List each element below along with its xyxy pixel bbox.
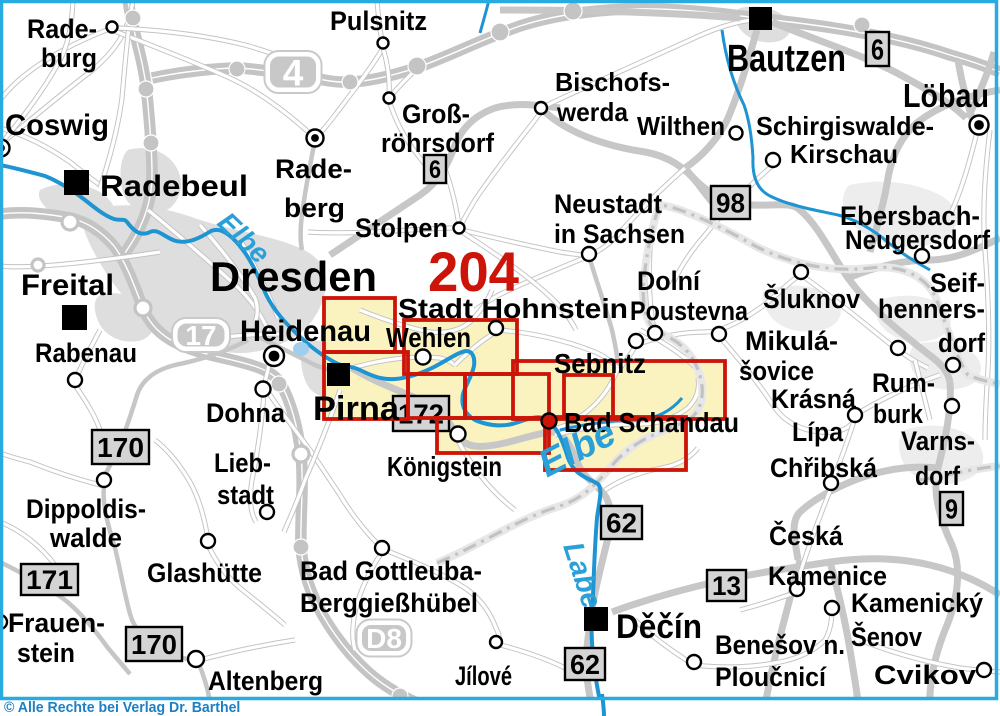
svg-text:Schirgiswalde-: Schirgiswalde-: [756, 111, 934, 141]
svg-text:Krásná: Krásná: [771, 384, 857, 414]
svg-text:Lípa: Lípa: [792, 417, 844, 447]
svg-text:Bad Gottleuba-: Bad Gottleuba-: [300, 556, 482, 586]
svg-text:Königstein: Königstein: [387, 451, 502, 482]
svg-text:9: 9: [945, 494, 958, 525]
svg-text:Kamenice: Kamenice: [768, 561, 887, 591]
svg-text:Stolpen: Stolpen: [355, 213, 448, 243]
svg-text:Neugersdorf: Neugersdorf: [845, 225, 991, 255]
svg-text:Glashütte: Glashütte: [147, 558, 262, 588]
svg-text:Mikulá-: Mikulá-: [745, 326, 838, 356]
svg-text:burg: burg: [41, 43, 97, 73]
svg-text:Wehlen: Wehlen: [386, 322, 471, 353]
svg-text:17: 17: [185, 320, 216, 351]
svg-text:Lieb-: Lieb-: [214, 448, 271, 478]
svg-text:Jílové: Jílové: [455, 661, 512, 691]
svg-text:Sebnitz: Sebnitz: [554, 348, 646, 379]
svg-text:Coswig: Coswig: [5, 109, 109, 142]
svg-text:Dresden: Dresden: [210, 253, 377, 300]
svg-text:Pirna: Pirna: [313, 390, 400, 428]
svg-text:Chřibská: Chřibská: [770, 453, 878, 483]
svg-text:Bischofs-: Bischofs-: [555, 67, 670, 97]
svg-text:6: 6: [429, 156, 441, 184]
svg-text:Pulsnitz: Pulsnitz: [330, 6, 427, 36]
svg-text:Poustevna: Poustevna: [630, 296, 749, 326]
svg-text:Berggießhübel: Berggießhübel: [300, 588, 478, 618]
svg-text:Šenov: Šenov: [851, 621, 922, 652]
svg-text:Cvikov: Cvikov: [874, 660, 976, 690]
svg-text:dorf: dorf: [938, 328, 986, 358]
svg-text:Frauen-: Frauen-: [8, 608, 105, 638]
svg-text:röhrsdorf: röhrsdorf: [381, 128, 495, 158]
svg-text:Kamenický: Kamenický: [851, 588, 983, 618]
svg-text:dorf: dorf: [915, 461, 961, 491]
svg-text:Kirschau: Kirschau: [790, 139, 898, 169]
svg-text:berg: berg: [284, 193, 345, 223]
svg-text:Benešov n.: Benešov n.: [715, 630, 845, 660]
svg-text:Dolní: Dolní: [637, 266, 701, 296]
svg-text:Dohna: Dohna: [206, 398, 286, 428]
svg-text:Wilthen: Wilthen: [637, 111, 725, 141]
svg-text:Radebeul: Radebeul: [100, 170, 248, 203]
svg-text:Rum-: Rum-: [872, 368, 935, 398]
svg-text:Neustadt: Neustadt: [554, 189, 662, 219]
svg-text:170: 170: [97, 432, 144, 463]
svg-text:henners-: henners-: [878, 294, 985, 324]
svg-text:Freital: Freital: [21, 269, 114, 302]
svg-text:Rabenau: Rabenau: [35, 338, 137, 368]
svg-text:Varns-: Varns-: [901, 426, 975, 456]
svg-text:Löbau: Löbau: [903, 77, 989, 114]
svg-text:šovice: šovice: [739, 356, 814, 386]
svg-text:Heidenau: Heidenau: [240, 315, 371, 348]
svg-text:13: 13: [712, 571, 741, 601]
svg-text:walde: walde: [49, 523, 122, 553]
svg-text:170: 170: [131, 629, 177, 660]
svg-text:62: 62: [570, 649, 600, 680]
svg-text:burk: burk: [873, 399, 924, 429]
svg-text:D8: D8: [366, 623, 402, 654]
svg-text:stein: stein: [17, 638, 75, 668]
svg-text:62: 62: [606, 508, 637, 539]
svg-text:in Sachsen: in Sachsen: [554, 219, 685, 249]
svg-text:stadt: stadt: [217, 480, 274, 510]
svg-text:4: 4: [283, 52, 304, 93]
svg-text:Bautzen: Bautzen: [727, 38, 846, 80]
svg-text:Dippoldis-: Dippoldis-: [26, 494, 146, 524]
svg-text:Ploučnicí: Ploučnicí: [715, 662, 827, 692]
svg-text:171: 171: [26, 565, 73, 595]
svg-text:98: 98: [716, 188, 745, 219]
svg-text:6: 6: [871, 34, 884, 66]
svg-text:Altenberg: Altenberg: [208, 666, 323, 696]
svg-text:Šluknov: Šluknov: [763, 283, 860, 314]
svg-text:Děčín: Děčín: [616, 608, 702, 646]
svg-text:Rade-: Rade-: [27, 14, 97, 44]
svg-text:Groß-: Groß-: [402, 99, 470, 129]
svg-text:Rade-: Rade-: [275, 154, 352, 184]
svg-text:Česká: Česká: [769, 520, 844, 551]
svg-text:werda: werda: [556, 97, 628, 127]
svg-text:204: 204: [428, 240, 519, 303]
